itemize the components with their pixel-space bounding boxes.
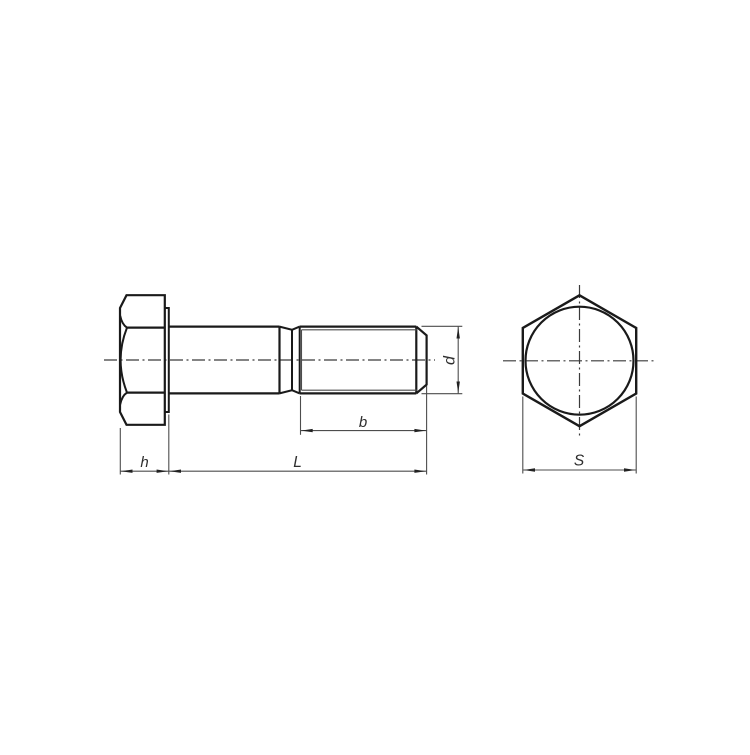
svg-text:d: d [442,355,459,365]
svg-text:b: b [359,414,367,431]
svg-text:S: S [574,452,585,469]
svg-text:h: h [140,454,148,471]
svg-text:L: L [293,454,302,471]
